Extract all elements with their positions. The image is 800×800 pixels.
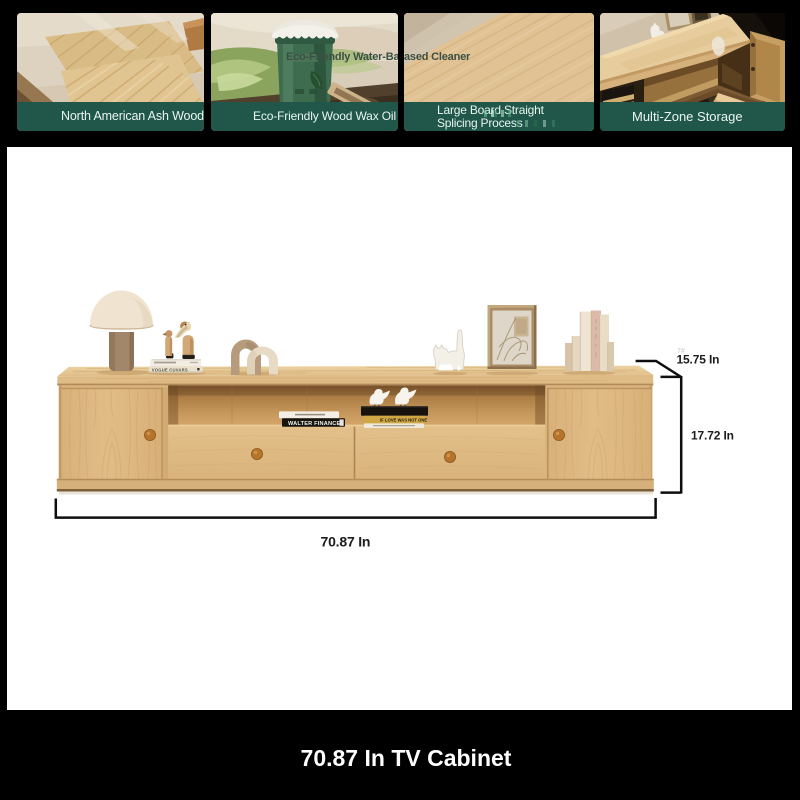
svg-text:15.75 In: 15.75 In [677, 353, 720, 367]
svg-text:WALTER FINANCE: WALTER FINANCE [288, 421, 340, 427]
svg-text:IF LOVE WAS NOT ONE: IF LOVE WAS NOT ONE [380, 417, 427, 422]
svg-text:70.87 In: 70.87 In [321, 534, 371, 550]
svg-text:17.72 In: 17.72 In [691, 429, 734, 443]
